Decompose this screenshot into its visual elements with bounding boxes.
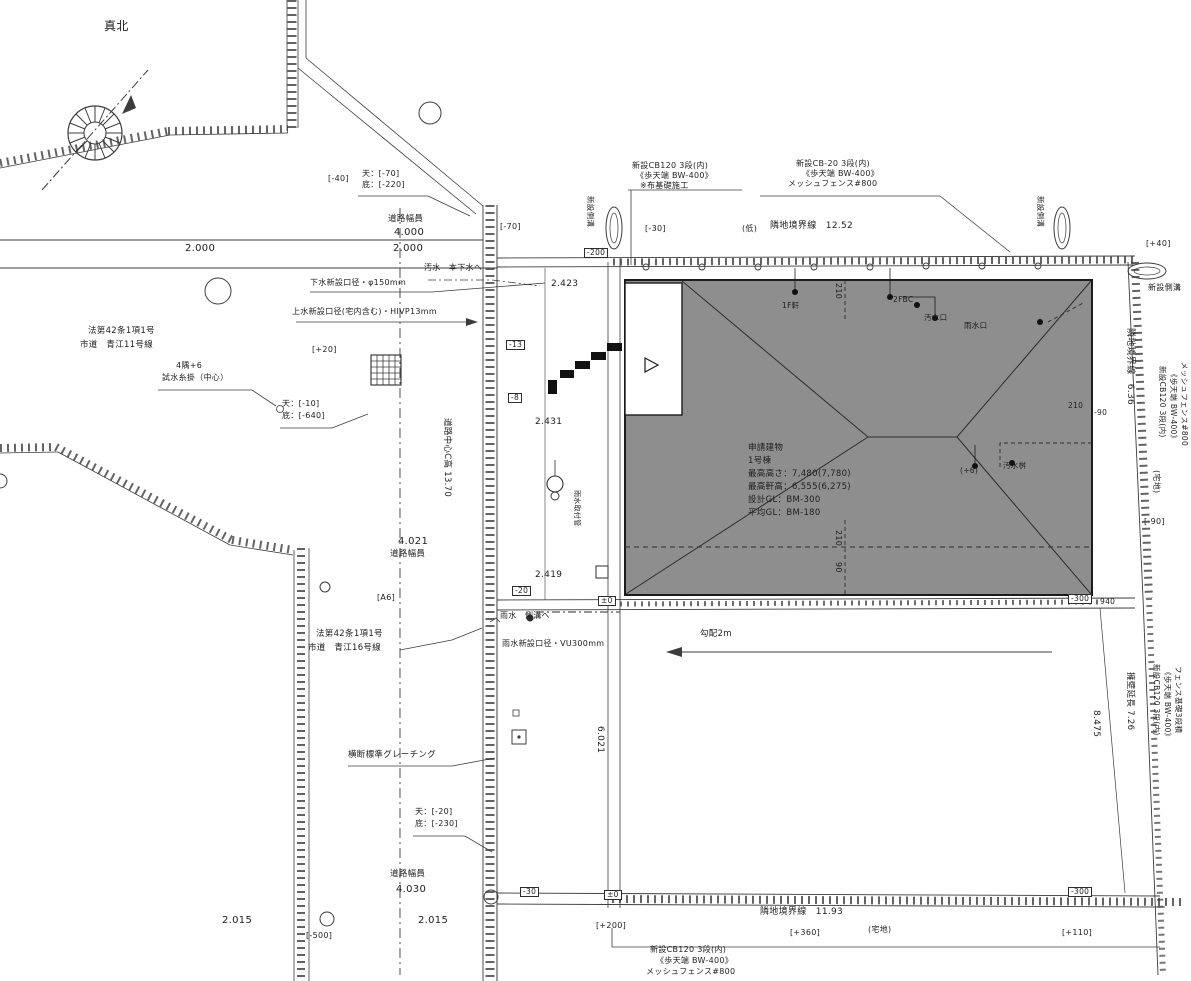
elev-mid-lower: 底：[-640] (282, 412, 325, 421)
approach-stairs (548, 343, 622, 394)
sewer-pipe-note: 下水新設口径・φ150mm (310, 279, 406, 288)
rain-pipe-note: 雨水新設口径・VU300mm (502, 640, 604, 649)
point-plus6: (+6) (960, 467, 978, 475)
adj-boundary-right: 隣地境界線 6.36 (1124, 328, 1134, 405)
elev-top-lower: 底：[-220] (362, 181, 405, 190)
roof-point-1: 1F軒 (782, 302, 800, 310)
box-pm0-bot: ±0 (604, 890, 622, 900)
road-width-bot-title: 道路幅員 (390, 870, 425, 879)
corner-note-line2: 試水糸掛（中心） (162, 374, 228, 383)
note-tr-line2: 《歩天端 BW-400》 (802, 170, 879, 179)
bracket-neg70: [-70] (500, 223, 521, 232)
dim-6021: 6.021 (594, 726, 604, 753)
point-masu: 汚水桝 (1003, 462, 1026, 470)
box-neg8: -8 (508, 393, 522, 403)
dim-2015-left: 2.015 (222, 915, 252, 926)
bracket-neg40: [-40] (328, 175, 349, 184)
north-label: 真北 (104, 20, 129, 33)
right-note2-line3: フェンス基礎3段積 (1174, 666, 1182, 733)
bldg-note-line1: 申請建物 (748, 444, 783, 453)
dim-2419: 2.419 (535, 571, 562, 581)
site-plan-linework (0, 0, 1191, 981)
roof-point-4: 雨水口 (964, 322, 987, 330)
road-width-top-title: 道路幅員 (388, 215, 423, 224)
entry-porch (625, 283, 682, 415)
dim-90-bottom: 90 (833, 562, 842, 573)
corner-note-line1: 4隅+6 (176, 362, 202, 371)
dim-210-right: 210 (1068, 402, 1083, 410)
paren-low: (低) (742, 225, 757, 234)
right-note-line1: 新設CB120 3段(内) (1158, 366, 1166, 438)
dim-2000-right: 2.000 (393, 243, 423, 254)
bracket-plus110: [+110] (1062, 929, 1092, 938)
law-road-16-line2: 市道 青江16号線 (308, 644, 381, 653)
note-bot-line1: 新設CB120 3段(内) (650, 946, 726, 955)
note-bot-line3: メッシュフェンス#800 (646, 968, 735, 977)
rain-branch-vertical: 雨水取付管 (572, 490, 580, 527)
law-road-11-line1: 法第42条1項1号 (88, 327, 155, 336)
paren-takuchi-right: (宅地) (1151, 470, 1160, 493)
gutter-left-vertical: 新設側溝 (586, 196, 594, 227)
dim-4021: 4.021 (398, 536, 428, 547)
note-bot-line2: 《歩天端 BW-400》 (656, 957, 733, 966)
bracket-neg30-top: [-30] (645, 225, 666, 234)
road-width-top-value: 4.000 (394, 227, 424, 238)
catch-basin-symbol (371, 355, 401, 385)
bldg-note-line4: 最高軒高：6,555(6,275) (748, 483, 851, 492)
paren-takuchi-bot: (宅地) (868, 926, 891, 935)
note-tr-line1: 新設CB-20 3段(内) (796, 160, 870, 169)
wall-length-right: 擁壁延長 7.26 (1125, 672, 1134, 730)
box-neg200: -200 (584, 248, 608, 258)
north-compass-icon (42, 70, 148, 190)
note-tl-line2: 《歩天端 BW-400》 (636, 172, 713, 181)
bracket-neg500: [-500] (306, 932, 332, 941)
right-note2-line2: 《歩天端 BW-400》 (1163, 668, 1171, 741)
law-road-11-line2: 市道 青江11号線 (80, 341, 153, 350)
sewage-main-note: 汚水 本下水へ (424, 264, 482, 273)
elev-top-upper: 天：[-70] (362, 170, 399, 179)
dim-2000-left: 2.000 (185, 243, 215, 254)
box-neg300-mid: -300 (1068, 594, 1092, 604)
adj-boundary-top: 隣地境界線 12.52 (770, 222, 853, 232)
elev-mid-upper: 天：[-10] (282, 400, 319, 409)
box-pm0-mid: ±0 (598, 596, 616, 606)
note-tl-line1: 新設CB120 3段(内) (632, 162, 708, 171)
box-neg30-bot: -30 (520, 887, 539, 897)
bldg-note-line6: 平均GL：BM-180 (748, 509, 821, 518)
dim-90-right: -90 (1094, 409, 1107, 417)
bracket-plus200: [+200] (596, 922, 626, 931)
rain-gutter-note: 雨水 側溝へ (500, 612, 550, 621)
right-note-line2: 《歩天端 BW-400》 (1169, 370, 1177, 443)
dim-2423: 2.423 (551, 280, 578, 290)
road-center-height: 道路中心C高 13.70 (442, 418, 451, 497)
dim-940: 940 (1100, 598, 1115, 606)
roof-point-2: 2FBC (893, 296, 914, 304)
right-note-line3: メッシュフェンス#800 (1180, 362, 1188, 446)
site-plan-canvas: 真北2.0002.000道路幅員4.000天：[-70]底：[-220][-40… (0, 0, 1191, 981)
bracket-plus360: [+360] (790, 929, 820, 938)
building-footprint (625, 268, 1092, 595)
bracket-plus20: [+20] (312, 346, 337, 355)
dim-210-rooftop: 210 (833, 283, 842, 299)
gutter-right-h: 新設側溝 (1148, 284, 1181, 293)
note-tl-line3: ※布基礎施工 (640, 182, 689, 191)
road-width-mid-title: 道路幅員 (390, 550, 425, 559)
bracket-plus40-right: [+40] (1146, 240, 1171, 249)
elev-bot-lower: 底：[-230] (415, 820, 458, 829)
water-pipe-note: 上水新設口径(宅内含む)・HIVP13mm (292, 308, 437, 317)
dim-2015-right: 2.015 (418, 915, 448, 926)
box-neg20-mid: -20 (512, 586, 531, 596)
dim-2431: 2.431 (535, 418, 562, 428)
dim-4030: 4.030 (396, 884, 426, 895)
slope-label: 勾配2m (700, 630, 732, 639)
gutter-right-vertical: 新設側溝 (1036, 196, 1044, 227)
law-road-16-line1: 法第42条1項1号 (316, 630, 383, 639)
grating-note: 横断標準グレーチング (348, 751, 436, 760)
adj-boundary-bot: 隣地境界線 11.93 (760, 908, 843, 918)
bldg-note-line2: 1号棟 (748, 457, 771, 466)
roof-point-3: 汚水口 (924, 314, 947, 322)
dim-210-bottom: 210 (833, 530, 842, 546)
bldg-note-line3: 最高高さ：7,480(7,780) (748, 470, 851, 479)
box-neg13: -13 (506, 340, 525, 350)
bracket-neg90-right: [-90] (1144, 518, 1165, 527)
elev-bot-upper: 天：[-20] (415, 808, 452, 817)
note-tr-line3: メッシュフェンス#800 (788, 180, 877, 189)
box-neg300-bot: -300 (1068, 887, 1092, 897)
bldg-note-line5: 設計GL：BM-300 (748, 496, 821, 505)
right-note2-line1: 新設CB120 3段(内) (1152, 664, 1160, 736)
dim-8475: 8.475 (1090, 710, 1100, 737)
bracket-a6: [A6] (377, 594, 395, 603)
